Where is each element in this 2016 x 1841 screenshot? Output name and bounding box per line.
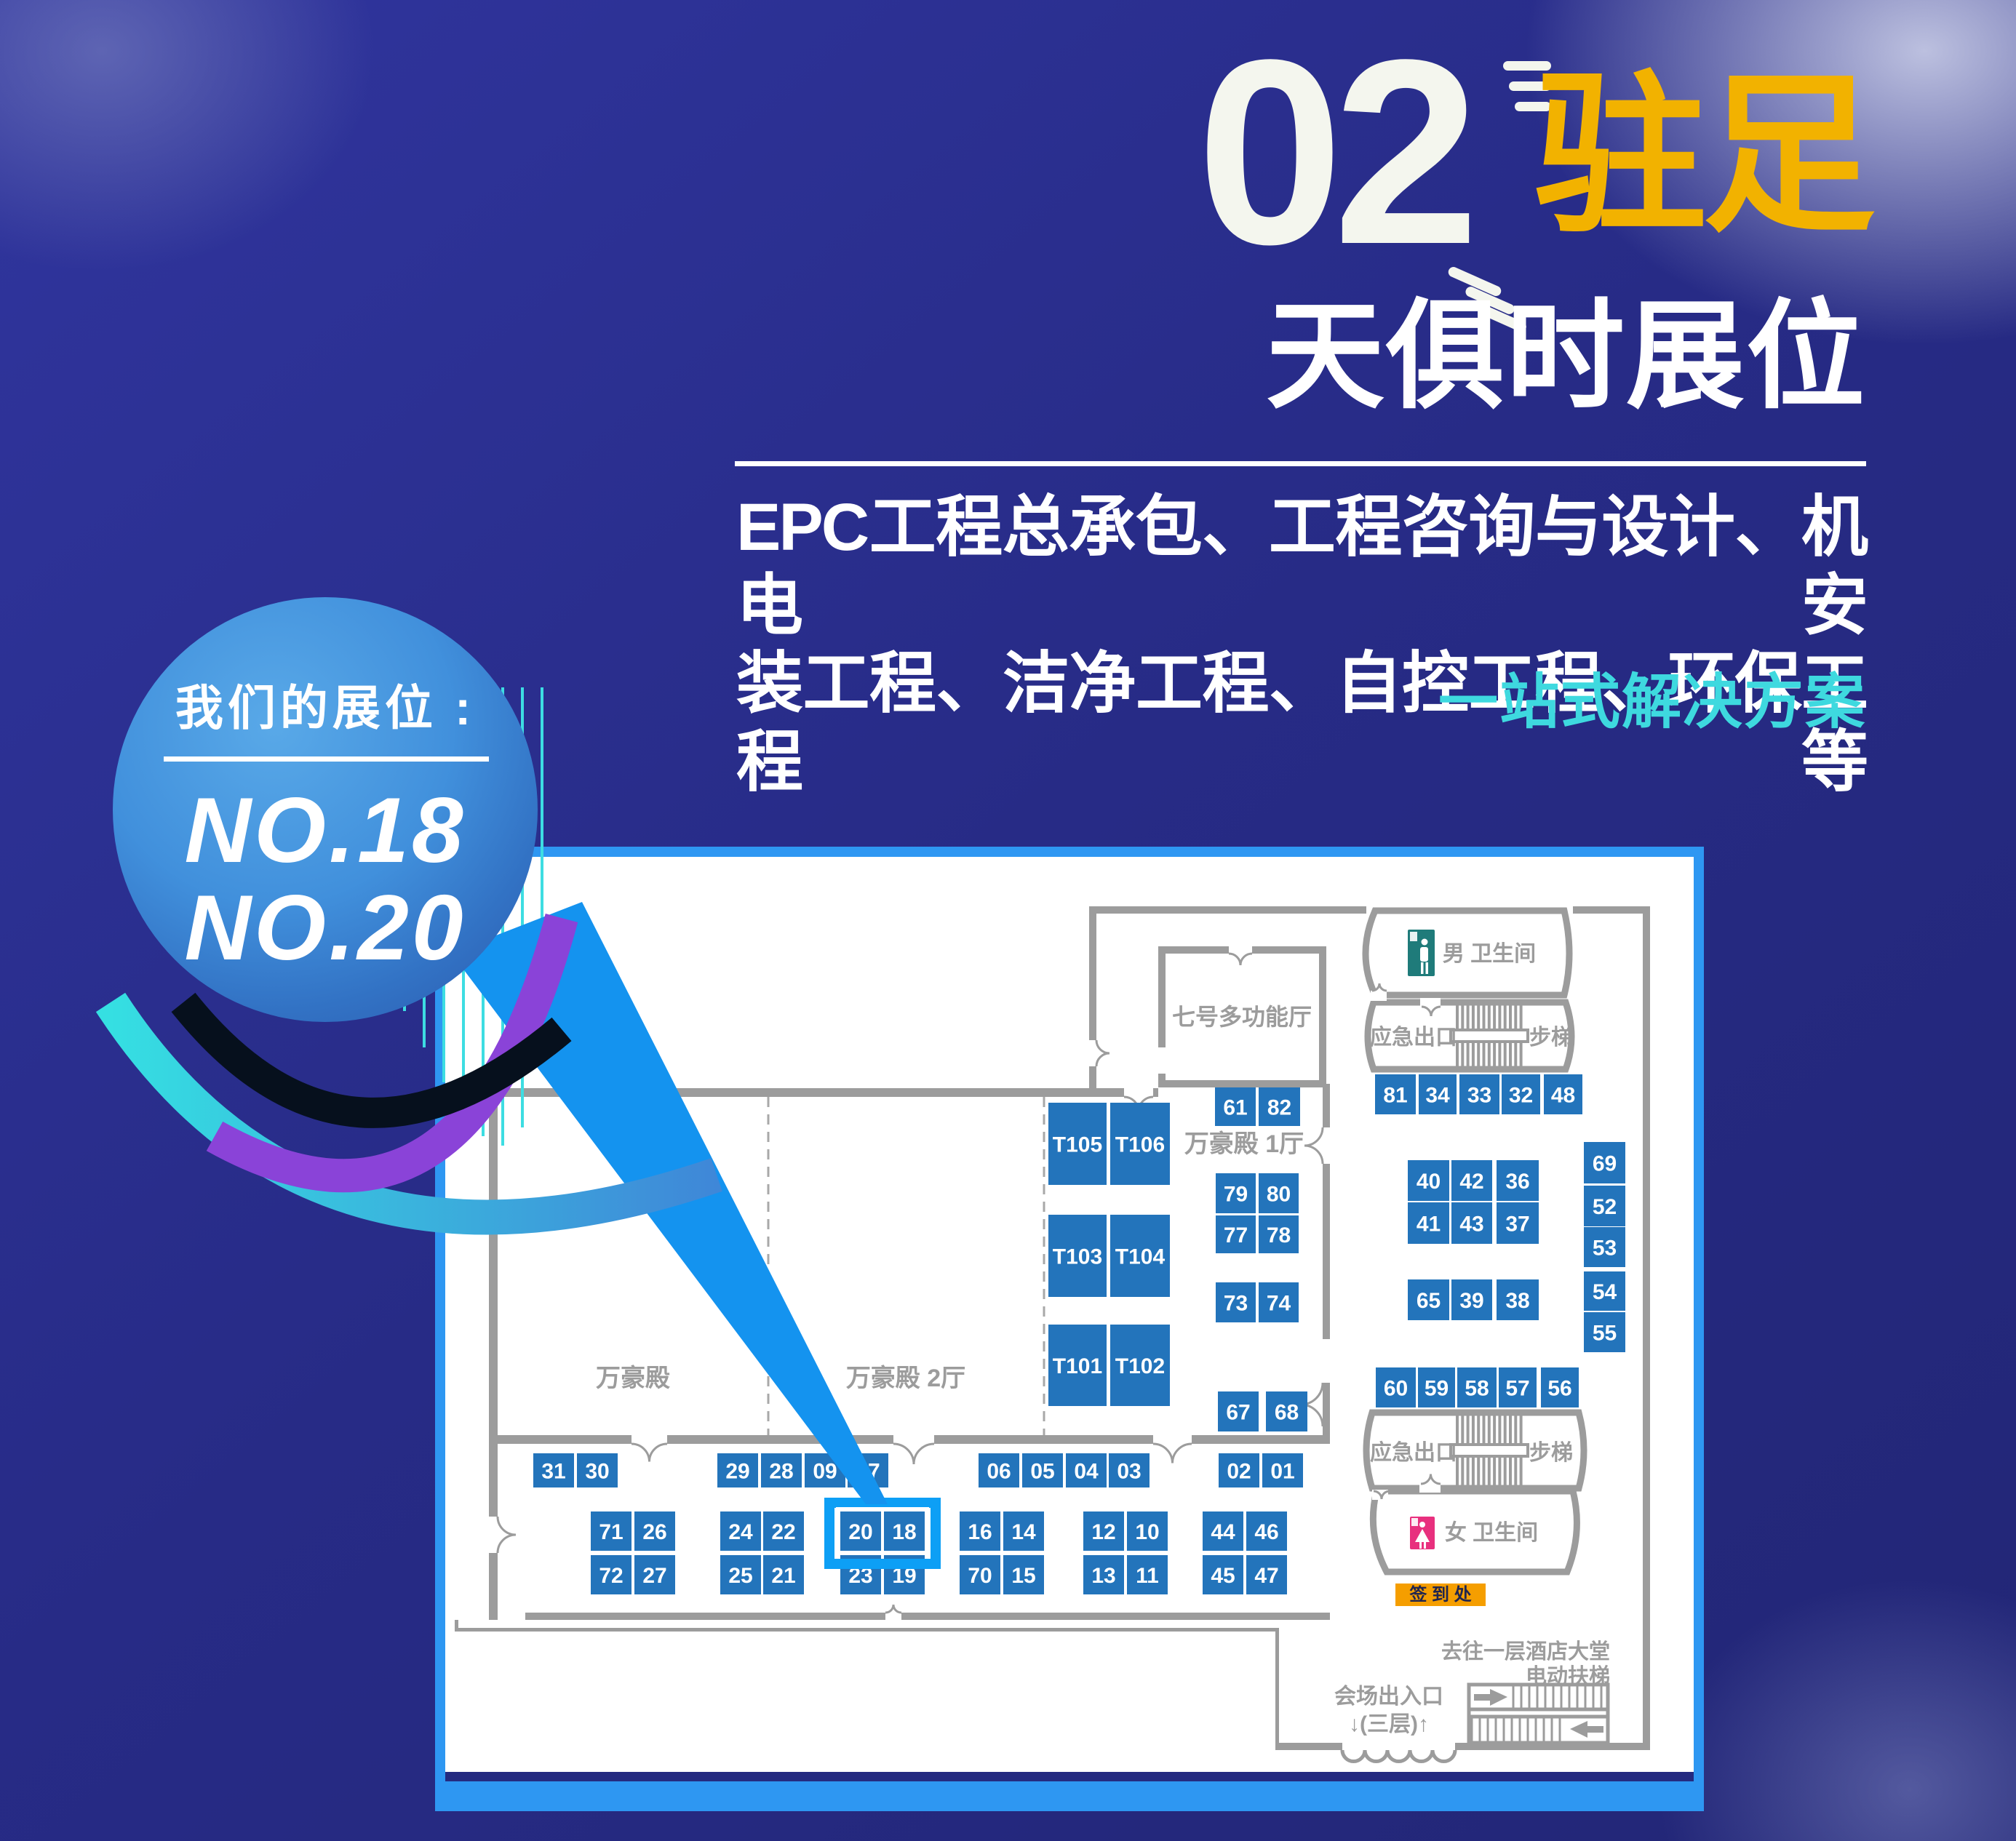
- svg-text:14: 14: [1011, 1520, 1036, 1544]
- booth-05: 05: [1022, 1453, 1063, 1487]
- svg-text:T106: T106: [1115, 1133, 1165, 1157]
- svg-text:28: 28: [769, 1460, 793, 1484]
- svg-text:56: 56: [1547, 1377, 1571, 1401]
- section-number-label: 驻足: [1534, 70, 1871, 243]
- svg-text:25: 25: [728, 1564, 752, 1588]
- svg-text:72: 72: [599, 1564, 623, 1588]
- booth-53: 53: [1584, 1227, 1625, 1267]
- booth-38: 38: [1497, 1279, 1539, 1320]
- svg-text:12: 12: [1091, 1520, 1115, 1544]
- booth-03: 03: [1109, 1453, 1150, 1487]
- booth-72: 72: [591, 1555, 632, 1594]
- svg-text:03: 03: [1117, 1460, 1141, 1484]
- booth-67: 67: [1218, 1391, 1259, 1431]
- svg-text:68: 68: [1275, 1401, 1299, 1425]
- poster-page: 02 驻足 天俱时展位 EPC工程总承包、工程咨询与设计、机电安 装工程、洁净工…: [0, 0, 2016, 1841]
- booth-34: 34: [1419, 1074, 1457, 1114]
- svg-text:65: 65: [1417, 1289, 1441, 1313]
- booth-56: 56: [1541, 1367, 1579, 1407]
- svg-text:09: 09: [813, 1460, 837, 1484]
- booth-02: 02: [1219, 1453, 1259, 1487]
- booth-32: 32: [1502, 1074, 1540, 1114]
- svg-text:55: 55: [1593, 1322, 1617, 1346]
- booth-24: 24: [720, 1511, 761, 1551]
- booth-T103: T103: [1048, 1215, 1107, 1297]
- to-lobby-label-line2: 电动扶梯: [1526, 1664, 1610, 1688]
- svg-text:42: 42: [1459, 1170, 1483, 1194]
- booth-80: 80: [1259, 1173, 1299, 1213]
- female-toilet-label: 女 卫生间: [1445, 1520, 1538, 1545]
- booth-46: 46: [1246, 1511, 1287, 1551]
- svg-text:06: 06: [987, 1460, 1011, 1484]
- booth-82: 82: [1259, 1087, 1300, 1126]
- service-description: EPC工程总承包、工程咨询与设计、机电安 装工程、洁净工程、自控工程、环保工程等: [736, 489, 1866, 802]
- male-toilet-label: 男 卫生间: [1443, 942, 1536, 966]
- svg-text:58: 58: [1465, 1377, 1489, 1401]
- svg-text:01: 01: [1270, 1460, 1294, 1484]
- floor-plan-map: 签 到 处 七号多功能厅 万豪殿 万豪殿 2厅 万豪殿 1厅 男 卫生间 应急出…: [435, 847, 1704, 1811]
- svg-text:21: 21: [771, 1564, 795, 1588]
- booth-20: 20: [840, 1511, 881, 1551]
- svg-text:18: 18: [892, 1520, 916, 1544]
- svg-text:33: 33: [1467, 1084, 1491, 1108]
- stairs-label-top: 步梯: [1529, 1026, 1573, 1050]
- svg-text:38: 38: [1505, 1289, 1529, 1313]
- svg-text:48: 48: [1551, 1084, 1575, 1108]
- svg-text:02: 02: [1227, 1460, 1251, 1484]
- svg-text:26: 26: [642, 1520, 666, 1544]
- booth-16: 16: [960, 1511, 1000, 1551]
- svg-text:04: 04: [1074, 1460, 1099, 1484]
- service-description-line1: EPC工程总承包、工程咨询与设计、机电安: [736, 489, 1866, 645]
- booth-18: 18: [884, 1511, 925, 1551]
- booth-58: 58: [1457, 1367, 1497, 1407]
- svg-text:73: 73: [1224, 1292, 1248, 1316]
- svg-text:22: 22: [771, 1520, 795, 1544]
- booth-65: 65: [1408, 1279, 1449, 1320]
- booth-79: 79: [1216, 1173, 1256, 1213]
- svg-text:24: 24: [728, 1520, 753, 1544]
- svg-text:57: 57: [1505, 1377, 1529, 1401]
- booth-73: 73: [1216, 1282, 1256, 1322]
- svg-text:T101: T101: [1053, 1354, 1102, 1378]
- booth-25: 25: [720, 1555, 761, 1594]
- svg-text:31: 31: [541, 1460, 565, 1484]
- svg-text:54: 54: [1593, 1280, 1617, 1304]
- svg-text:44: 44: [1211, 1520, 1235, 1544]
- booth-57: 57: [1499, 1367, 1537, 1407]
- booth-15: 15: [1003, 1555, 1044, 1594]
- svg-text:46: 46: [1254, 1520, 1278, 1544]
- booth-55: 55: [1584, 1312, 1625, 1352]
- booth-T102: T102: [1110, 1325, 1170, 1406]
- svg-text:10: 10: [1135, 1520, 1159, 1544]
- booth-45: 45: [1203, 1555, 1243, 1594]
- title-divider: [735, 461, 1866, 466]
- booth-30: 30: [577, 1453, 618, 1487]
- svg-text:53: 53: [1593, 1237, 1617, 1261]
- booth-33: 33: [1459, 1074, 1499, 1114]
- booth-42: 42: [1451, 1160, 1492, 1201]
- booth-T104: T104: [1110, 1215, 1170, 1297]
- booth-71: 71: [591, 1511, 632, 1551]
- booth-29: 29: [717, 1453, 758, 1487]
- svg-text:82: 82: [1267, 1096, 1291, 1120]
- booth-60: 60: [1376, 1367, 1416, 1407]
- svg-text:39: 39: [1459, 1289, 1483, 1313]
- booth-13: 13: [1083, 1555, 1124, 1594]
- booth-77: 77: [1216, 1215, 1256, 1253]
- svg-text:52: 52: [1593, 1195, 1617, 1219]
- booth-number-20: NO.20: [113, 882, 538, 974]
- svg-text:78: 78: [1267, 1223, 1291, 1247]
- booth-26: 26: [634, 1511, 675, 1551]
- male-toilet-icon: [1408, 930, 1435, 976]
- svg-text:59: 59: [1425, 1377, 1449, 1401]
- booth-37: 37: [1497, 1202, 1539, 1244]
- female-toilet-icon: [1410, 1517, 1435, 1549]
- svg-text:61: 61: [1223, 1096, 1247, 1120]
- svg-text:45: 45: [1211, 1564, 1235, 1588]
- booth-badge-label: 我们的展位 :: [113, 669, 538, 739]
- to-lobby-label-line1: 去往一层酒店大堂: [1441, 1639, 1610, 1664]
- booth-69: 69: [1584, 1142, 1625, 1183]
- stairs-label-bottom2: 步梯: [1529, 1441, 1573, 1465]
- booth-70: 70: [960, 1555, 1000, 1594]
- booth-14: 14: [1003, 1511, 1044, 1551]
- svg-text:79: 79: [1224, 1183, 1248, 1207]
- booth-22: 22: [763, 1511, 804, 1551]
- booth-52: 52: [1584, 1186, 1625, 1226]
- booth-39: 39: [1451, 1279, 1492, 1320]
- booth-12: 12: [1083, 1511, 1124, 1551]
- booth-41: 41: [1408, 1202, 1449, 1244]
- svg-text:15: 15: [1011, 1564, 1035, 1588]
- svg-text:29: 29: [725, 1460, 749, 1484]
- svg-text:30: 30: [585, 1460, 609, 1484]
- svg-text:37: 37: [1505, 1213, 1529, 1237]
- booth-06: 06: [979, 1453, 1019, 1487]
- booth-48: 48: [1544, 1074, 1582, 1114]
- booth-47: 47: [1246, 1555, 1287, 1594]
- booth-07: 07: [848, 1453, 888, 1487]
- svg-text:71: 71: [599, 1520, 623, 1544]
- sign-in-label: 签 到 处: [1409, 1584, 1471, 1605]
- svg-text:70: 70: [968, 1564, 992, 1588]
- booth-44: 44: [1203, 1511, 1243, 1551]
- booth-04: 04: [1066, 1453, 1107, 1487]
- booth-54: 54: [1584, 1271, 1625, 1311]
- booth-68: 68: [1266, 1391, 1307, 1431]
- page-title: 天俱时展位: [1266, 297, 1866, 415]
- booth-36: 36: [1497, 1160, 1539, 1201]
- booth-78: 78: [1259, 1215, 1299, 1253]
- booth-T105: T105: [1048, 1103, 1107, 1185]
- booth-T106: T106: [1110, 1103, 1170, 1185]
- svg-text:81: 81: [1383, 1084, 1407, 1108]
- booth-59: 59: [1418, 1367, 1455, 1407]
- room-label-multihall: 七号多功能厅: [1172, 1004, 1312, 1030]
- svg-text:80: 80: [1267, 1183, 1291, 1207]
- svg-text:T105: T105: [1053, 1133, 1102, 1157]
- booth-number-18: NO.18: [113, 784, 538, 876]
- entrance-label-line1: 会场出入口: [1334, 1685, 1443, 1709]
- booth-T101: T101: [1048, 1325, 1107, 1406]
- svg-text:T104: T104: [1115, 1245, 1166, 1269]
- svg-text:40: 40: [1417, 1170, 1441, 1194]
- svg-text:60: 60: [1384, 1377, 1408, 1401]
- floor-plan-panel: 签 到 处 七号多功能厅 万豪殿 万豪殿 2厅 万豪殿 1厅 男 卫生间 应急出…: [435, 847, 1704, 1811]
- booth-11: 11: [1127, 1555, 1168, 1594]
- emergency-exit-label-top: 应急出口: [1370, 1025, 1457, 1050]
- emergency-exit-label-bottom: 应急出口: [1370, 1440, 1457, 1465]
- svg-text:74: 74: [1267, 1292, 1291, 1316]
- booth-74: 74: [1259, 1282, 1299, 1322]
- svg-text:T103: T103: [1053, 1245, 1102, 1269]
- booth-28: 28: [761, 1453, 802, 1487]
- booth-01: 01: [1262, 1453, 1303, 1487]
- booth-21: 21: [763, 1555, 804, 1594]
- svg-text:13: 13: [1091, 1564, 1115, 1588]
- svg-text:07: 07: [856, 1460, 880, 1484]
- room-label-mainhall: 万豪殿: [596, 1364, 670, 1392]
- svg-text:32: 32: [1509, 1084, 1533, 1108]
- svg-text:05: 05: [1030, 1460, 1054, 1484]
- section-number: 02: [1197, 20, 1470, 284]
- svg-text:47: 47: [1254, 1564, 1278, 1588]
- service-description-highlight: 一站式解决方案: [1438, 653, 1866, 740]
- booth-43: 43: [1451, 1202, 1492, 1244]
- svg-text:67: 67: [1226, 1401, 1250, 1425]
- booth-09: 09: [805, 1453, 845, 1487]
- svg-text:69: 69: [1593, 1152, 1617, 1176]
- svg-text:36: 36: [1505, 1170, 1529, 1194]
- svg-text:43: 43: [1459, 1213, 1483, 1237]
- booth-10: 10: [1127, 1511, 1168, 1551]
- svg-text:20: 20: [848, 1520, 872, 1544]
- booth-31: 31: [533, 1453, 574, 1487]
- svg-text:41: 41: [1417, 1213, 1441, 1237]
- svg-text:16: 16: [968, 1520, 992, 1544]
- svg-text:11: 11: [1136, 1564, 1159, 1588]
- room-label-hall2: 万豪殿 2厅: [846, 1364, 965, 1392]
- svg-text:27: 27: [642, 1564, 666, 1588]
- booth-61: 61: [1215, 1087, 1256, 1126]
- booth-badge-underline: [164, 756, 489, 762]
- booth-27: 27: [634, 1555, 675, 1594]
- booth-40: 40: [1408, 1160, 1449, 1201]
- svg-text:34: 34: [1425, 1084, 1450, 1108]
- map-bottom-shadow: [445, 1772, 1694, 1781]
- booth-81: 81: [1375, 1074, 1416, 1114]
- svg-text:T102: T102: [1115, 1354, 1165, 1378]
- entrance-label-line2: ↓(三层)↑: [1349, 1712, 1429, 1736]
- room-label-hall1: 万豪殿 1厅: [1184, 1130, 1304, 1158]
- svg-text:77: 77: [1224, 1223, 1248, 1247]
